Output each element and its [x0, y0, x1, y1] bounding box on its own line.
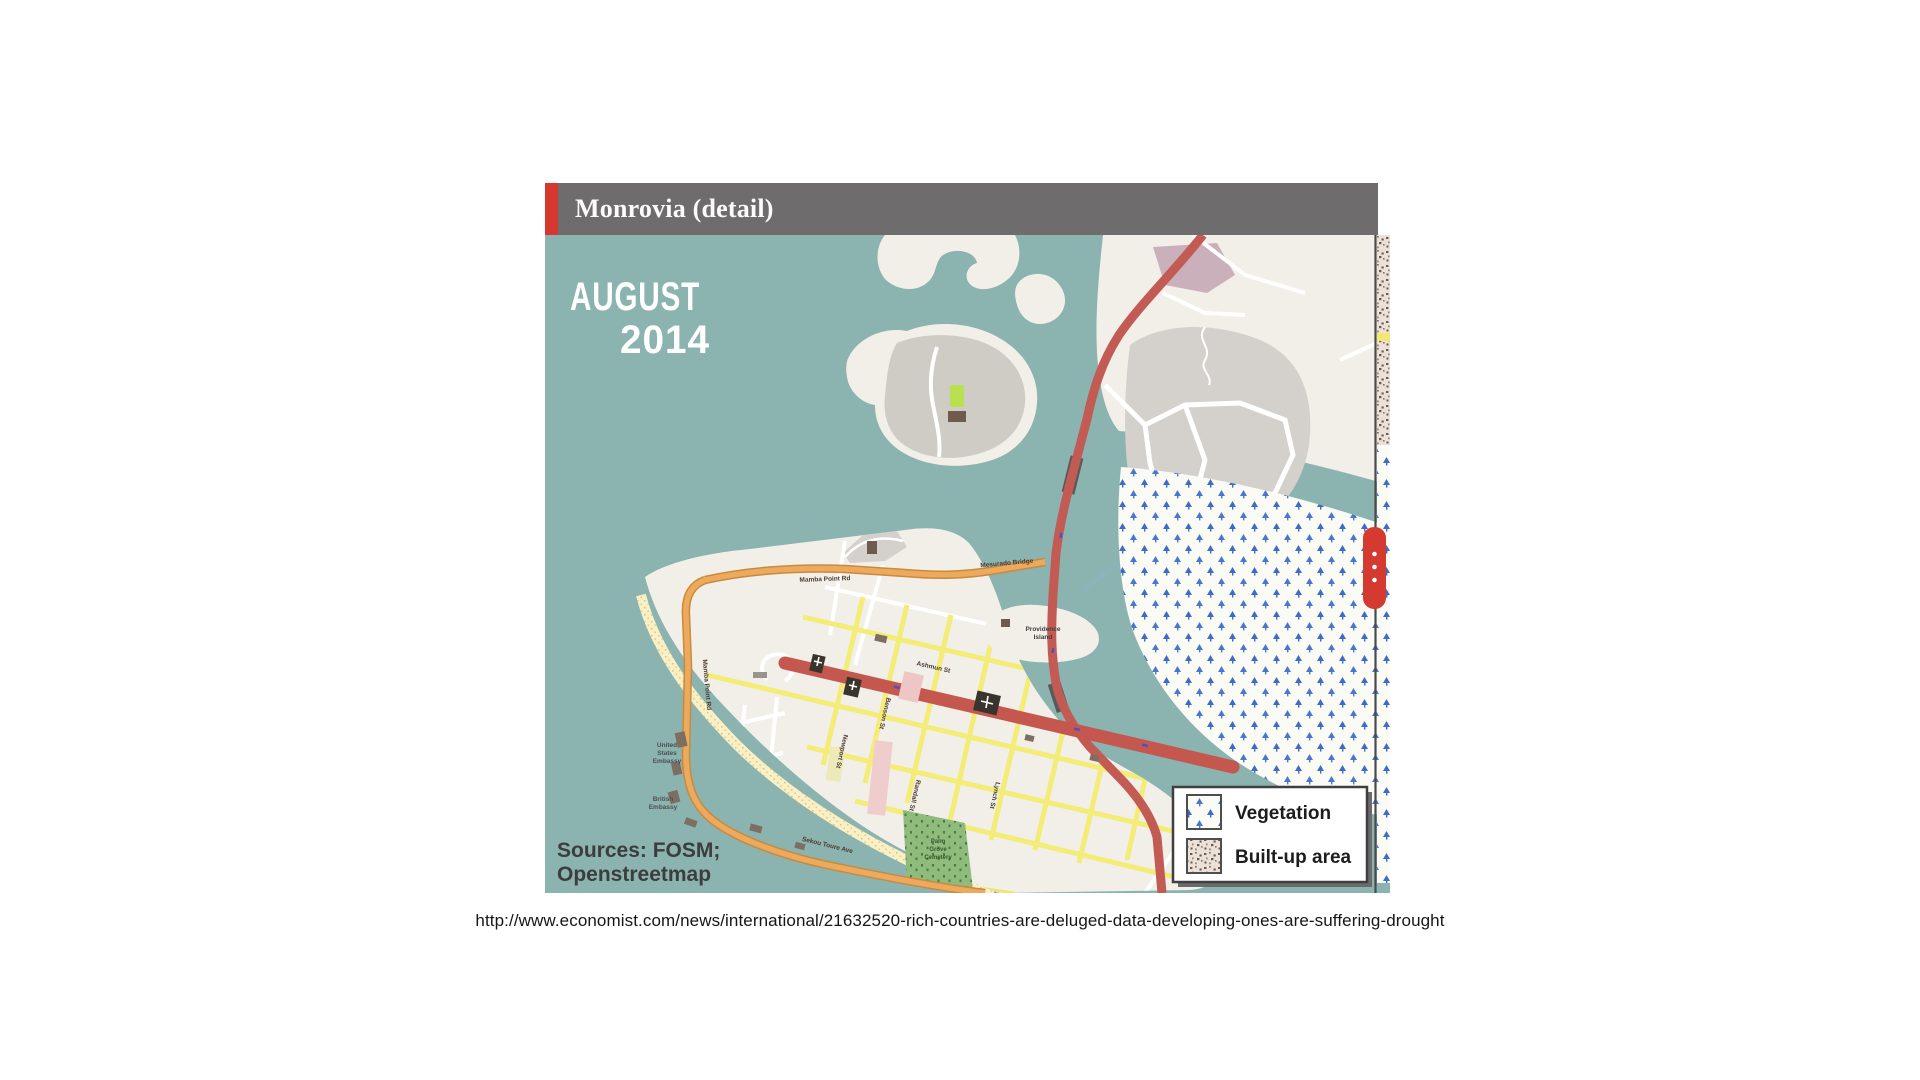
slider-sliver-vegetation: [1377, 445, 1390, 883]
map-title-bar: Monrovia (detail): [545, 183, 1378, 235]
building-block: [948, 411, 966, 422]
page: Monrovia (detail): [0, 0, 1920, 1080]
sources-line2: Openstreetmap: [557, 863, 711, 886]
map-title: Monrovia (detail): [575, 194, 774, 224]
us-embassy-label-line2: States: [657, 750, 677, 757]
handle-dot-1: [1372, 552, 1377, 557]
handle-dot-2: [1372, 565, 1377, 570]
us-embassy-label-line1: United: [657, 742, 677, 749]
sources-note: Sources: FOSM; Openstreetmap: [557, 839, 720, 886]
legend-swatch-vegetation: [1187, 795, 1221, 829]
cemetery-label-line3: Cemetery: [924, 855, 952, 861]
cemetery-label-line1: Palm: [931, 839, 945, 845]
source-url[interactable]: http://www.economist.com/news/internatio…: [0, 911, 1920, 931]
legend-label-builtup: Built-up area: [1235, 847, 1352, 868]
british-embassy-label-line1: British: [653, 796, 674, 803]
slider-sliver-water: [1377, 883, 1390, 893]
park-block: [950, 385, 964, 407]
handle-dot-3: [1372, 578, 1377, 583]
slider-sliver-road: [1377, 333, 1390, 341]
map-canvas: Mamba Point Rd Mamba Point Rd Mesurado B…: [545, 235, 1390, 893]
us-embassy-label-line3: Embassy: [653, 758, 682, 765]
sources-line1: Sources: FOSM;: [557, 839, 720, 862]
map-widget: Monrovia (detail): [545, 183, 1390, 893]
map-legend: Vegetation Built-up area: [1173, 787, 1372, 887]
legend-swatch-builtup: [1187, 839, 1221, 873]
legend-label-vegetation: Vegetation: [1235, 803, 1331, 824]
period-line2: 2014: [620, 318, 710, 362]
british-embassy-label-line2: Embassy: [649, 804, 678, 811]
cemetery-label-line2: Grove: [929, 847, 947, 853]
period-line1: AUGUST: [570, 275, 700, 319]
island-label-line1: Providence: [1025, 626, 1060, 633]
title-accent-mark: [545, 183, 558, 235]
island-label-line2: Island: [1034, 634, 1053, 641]
monrovia-map: Mamba Point Rd Mamba Point Rd Mesurado B…: [545, 235, 1390, 893]
